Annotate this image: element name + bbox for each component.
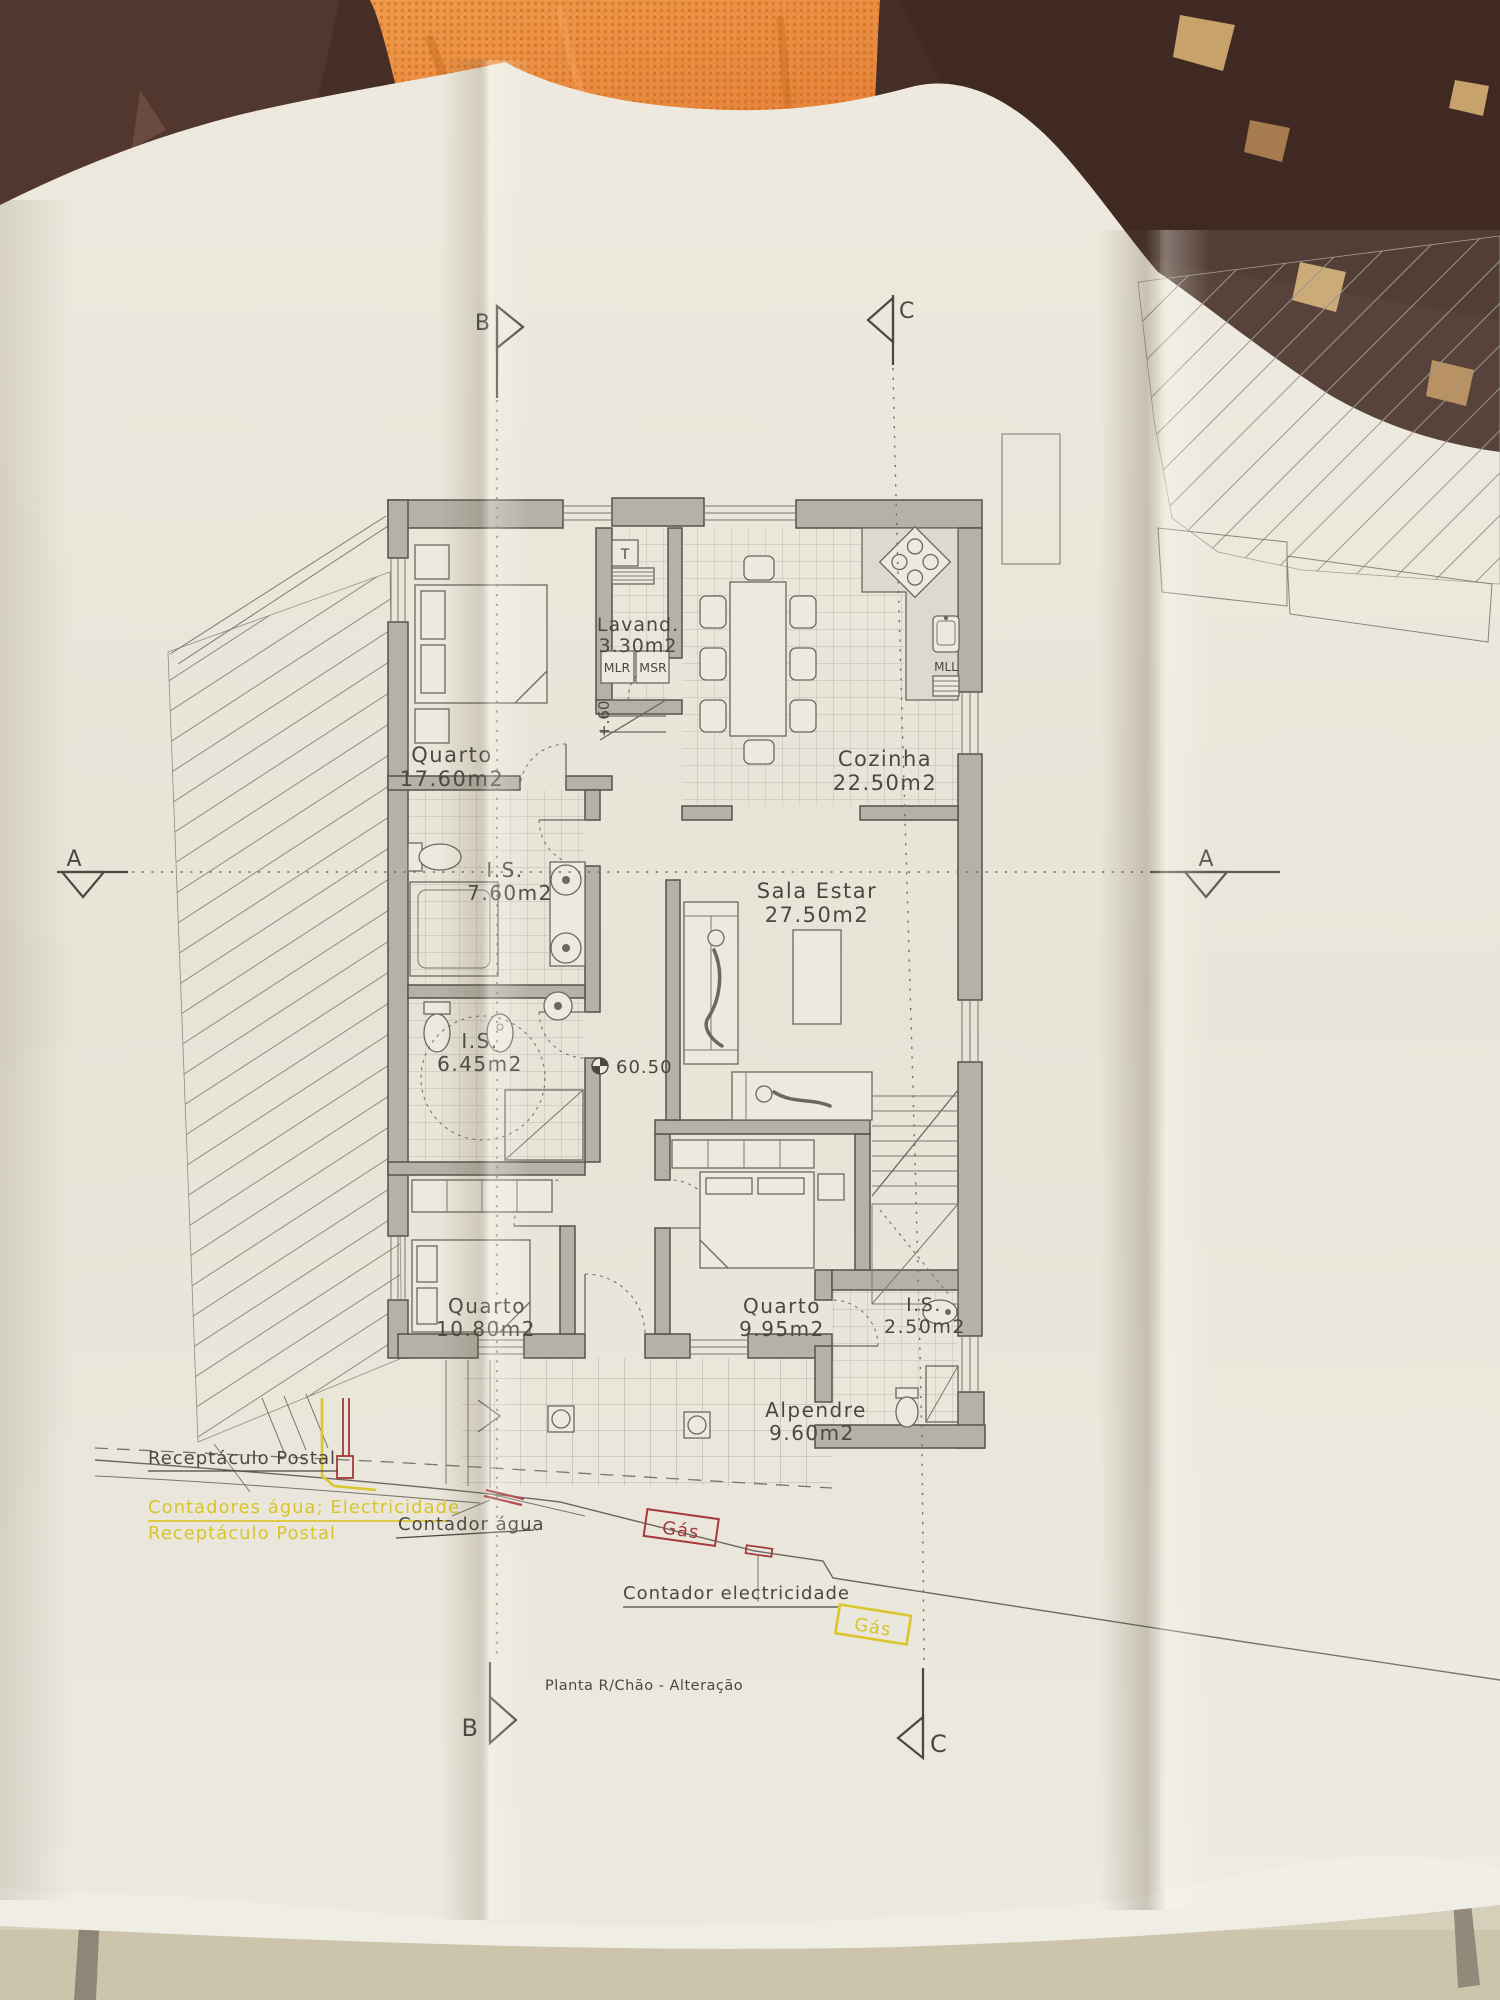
scene: T MLR MSR MLL	[0, 0, 1500, 2000]
dryer-label: MSR	[639, 660, 667, 675]
washer-label: MLR	[604, 660, 631, 675]
floor-level-value: 60.50	[616, 1057, 673, 1078]
drawing-title: Planta R/Chão - Alteração	[545, 1678, 743, 1694]
coffee-table	[793, 930, 841, 1024]
room-is3-name: I.S.	[906, 1294, 942, 1316]
room-alpendre-area: 9.60m2	[769, 1421, 855, 1445]
annotation-postal-new: Receptáculo Postal	[148, 1523, 336, 1544]
step-level-label: +.60	[595, 701, 613, 737]
annotation-electric-meter: Contador electricidade	[623, 1583, 850, 1604]
room-quarto3-name: Quarto	[743, 1294, 821, 1318]
person-figure	[708, 930, 724, 946]
room-lavand-area: 3.30m2	[599, 635, 678, 657]
person-figure-2	[756, 1086, 772, 1102]
dishwasher-label: MLL	[934, 660, 958, 674]
room-cozinha-name: Cozinha	[838, 747, 932, 771]
room-lavand-name: Lavand.	[597, 614, 679, 636]
dining-table	[730, 582, 786, 736]
water-heater-label: T	[620, 547, 630, 563]
room-alpendre-name: Alpendre	[765, 1398, 867, 1422]
annotation-postal-existing: Receptáculo Postal	[148, 1448, 336, 1469]
photo-of-floor-plan: T MLR MSR MLL	[0, 0, 1500, 2000]
section-letter-c: C	[899, 299, 914, 324]
room-sala-area: 27.50m2	[765, 903, 869, 927]
room-sala-name: Sala Estar	[757, 879, 878, 903]
room-quarto3-area: 9.95m2	[739, 1317, 825, 1341]
daybed	[732, 1072, 872, 1120]
neighbour-hatch-left	[168, 572, 402, 1442]
section-letter-c2: C	[930, 1730, 947, 1758]
room-is3-area: 2.50m2	[884, 1316, 966, 1338]
room-cozinha-area: 22.50m2	[833, 771, 937, 795]
